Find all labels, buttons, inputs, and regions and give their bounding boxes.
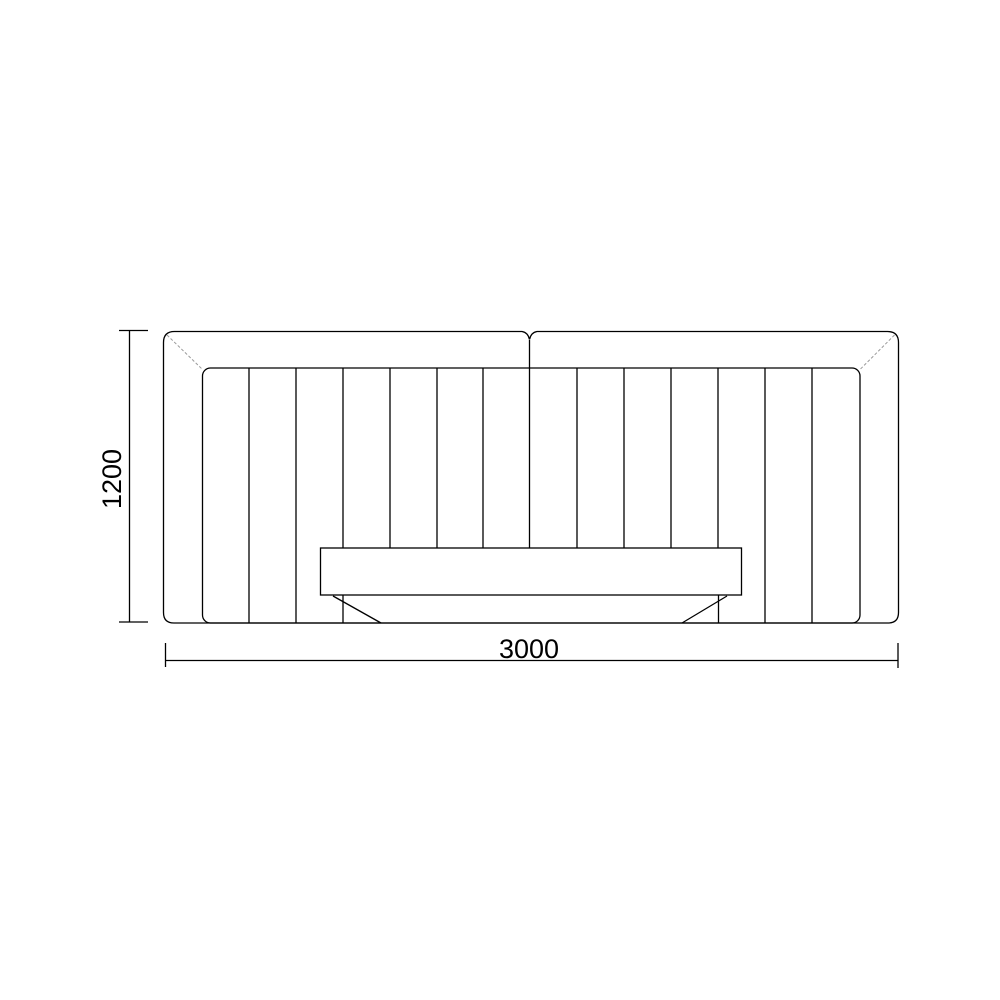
corner-crease-right <box>861 335 895 369</box>
width-dimension-label: 3000 <box>499 634 559 664</box>
width-dimension: 3000 <box>165 634 898 668</box>
channel-lines-center <box>343 368 718 548</box>
sofa-elevation-drawing: 1200 3000 <box>0 0 1000 1000</box>
technical-drawing-canvas: 1200 3000 <box>0 0 1000 1000</box>
right-leg <box>682 595 727 623</box>
left-leg <box>333 595 381 623</box>
right-leg-diagonal <box>682 596 727 623</box>
corner-crease-left <box>167 335 202 369</box>
bench-panel <box>321 548 742 595</box>
height-dimension: 1200 <box>97 331 148 623</box>
height-dimension-label: 1200 <box>97 449 127 509</box>
sofa-outline-group <box>164 332 899 624</box>
left-leg-diagonal <box>333 596 381 623</box>
